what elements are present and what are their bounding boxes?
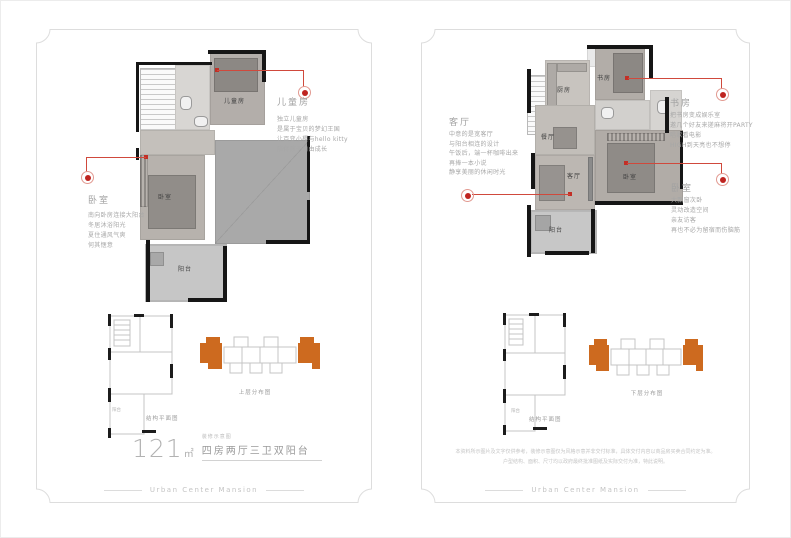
structure-plan-label: 结构平面图 (529, 415, 562, 423)
brand-name: Urban Center Mansion (531, 486, 639, 494)
annotation-body-child: 独立儿童房 是属于宝贝的梦幻王国 让百变小樱与hello kitty 陪伴孩子自… (277, 115, 348, 155)
leader-dot (461, 189, 474, 202)
room-label-living: 客厅 (567, 171, 581, 180)
distribution-diagram-lower (587, 335, 705, 383)
brand-name: Urban Center Mansion (150, 486, 258, 494)
panel-right: 厨房 书房 餐厅 客厅 卧室 阳台 客厅 中意的是宽客厅 与阳台相连的设计 午饭… (421, 29, 750, 503)
stair (140, 68, 177, 132)
room-terrace (215, 140, 310, 244)
room-label-bedroom: 卧室 (158, 192, 172, 201)
wall (591, 209, 595, 253)
card-footer: Urban Center Mansion (36, 486, 372, 494)
annotation-line: 静享美丽的休闲时光 (449, 168, 518, 178)
annotation-line: 与阳台相连的设计 (449, 140, 518, 150)
disclaimer-line-1: 本资料所示图片及文字仅供参考，装修示意图仅为风格示意并非交付标准，具体交付内容以… (445, 448, 726, 455)
disclaimer-line-2: 户型结构、面积、尺寸均以政府最终批准图纸及实际交付为准，特此说明。 (445, 458, 726, 465)
footer-rule (485, 490, 523, 491)
wall (208, 50, 266, 54)
wall (146, 240, 150, 302)
wall (223, 246, 227, 302)
room-hall (140, 130, 215, 155)
wall (307, 200, 310, 244)
wall (649, 45, 653, 79)
footer-rule (104, 490, 142, 491)
brochure-page: 儿童房 卧室 阳台 儿童房 独立儿童房 是属于宝贝的梦幻王国 让百变小樱与hel… (0, 0, 791, 538)
panel-left: 儿童房 卧室 阳台 儿童房 独立儿童房 是属于宝贝的梦幻王国 让百变小樱与hel… (36, 29, 372, 503)
wall (136, 148, 139, 160)
annotation-title-living: 客厅 (449, 115, 471, 128)
annotation-line: 让百变小樱与hello kitty (277, 135, 348, 145)
annotation-line: 夏住通风气爽 (88, 231, 145, 241)
wall (266, 240, 310, 244)
dining-table (553, 127, 577, 149)
leader-line (217, 70, 303, 71)
annotation-body-study: 把书房变成娱乐室 邀几个好友来搓麻将开PARTY 唱歌看电影 HIGH到天亮也不… (670, 111, 753, 151)
tv-cabinet (588, 157, 593, 201)
wall (531, 153, 535, 189)
footer-rule (648, 490, 686, 491)
distribution-label-upper: 上层分布图 (215, 388, 295, 396)
annotation-line: 大飘窗次卧 (671, 196, 740, 206)
structure-balcony-label: 阳台 (511, 408, 520, 414)
annotation-line: HIGH到天亮也不想停 (670, 141, 753, 151)
wall (587, 45, 651, 49)
structure-balcony-label: 阳台 (112, 407, 121, 413)
room-label-balcony: 阳台 (178, 264, 192, 273)
leader-line (86, 157, 87, 172)
annotation-line: 冬居沐浴阳光 (88, 221, 145, 231)
bed (613, 53, 643, 93)
annotation-line: 邀几个好友来搓麻将开PARTY (670, 121, 753, 131)
annotation-line: 把书房变成娱乐室 (670, 111, 753, 121)
bed (148, 175, 196, 229)
room-label-bedroom: 卧室 (623, 172, 637, 181)
area-tag: 装修示意图 (202, 433, 322, 440)
distribution-diagram-upper (198, 331, 322, 383)
annotation-body-living: 中意的是宽客厅 与阳台相连的设计 午饭后，端一杯咖啡出来 再捧一本小说 静享美丽… (449, 130, 518, 178)
card-footer: Urban Center Mansion (421, 486, 750, 494)
area-headline: 121 ㎡ 装修示意图 四房两厅三卫双阳台 (132, 433, 322, 461)
leader-line (627, 163, 721, 164)
headboard (607, 133, 665, 141)
floorplan-left: 儿童房 卧室 阳台 (128, 50, 313, 310)
annotation-title-child: 儿童房 (277, 95, 310, 108)
annotation-line: 再也不必为留宿而伤脑筋 (671, 226, 740, 236)
annotation-line: 灵动改造空间 (671, 206, 740, 216)
toilet-icon (601, 107, 614, 119)
wall (527, 205, 531, 257)
annotation-line: 南向卧房连接大阳台 (88, 211, 145, 221)
toilet-icon (180, 96, 192, 110)
leader-line (303, 70, 304, 87)
room-label-study: 书房 (597, 73, 611, 82)
wall (188, 298, 226, 302)
structure-plan-label: 结构平面图 (146, 414, 179, 422)
leader-dot (81, 171, 94, 184)
annotation-body-bedroom2: 大飘窗次卧 灵动改造空间 亲友访客 再也不必为留宿而伤脑筋 (671, 196, 740, 236)
sink-icon (194, 116, 208, 127)
leader-dot (716, 173, 729, 186)
sofa (539, 165, 565, 201)
annotation-line: 再捧一本小说 (449, 159, 518, 169)
area-value: 121 (132, 437, 183, 461)
annotation-line: 何其惬意 (88, 241, 145, 251)
room-label-dining: 餐厅 (541, 132, 555, 141)
annotation-body-bedroom: 南向卧房连接大阳台 冬居沐浴阳光 夏住通风气爽 何其惬意 (88, 211, 145, 251)
wall (136, 62, 139, 132)
annotation-line: 是属于宝贝的梦幻王国 (277, 125, 348, 135)
room-label-kitchen: 厨房 (557, 85, 571, 94)
footer-rule (266, 490, 304, 491)
wall (595, 201, 683, 205)
wall (665, 97, 669, 133)
leader-line (472, 194, 570, 195)
annotation-title-study: 书房 (670, 96, 692, 109)
annotation-line: 午饭后，端一杯咖啡出来 (449, 149, 518, 159)
leader-dot (716, 88, 729, 101)
leader-line (86, 157, 146, 158)
annotation-line: 独立儿童房 (277, 115, 348, 125)
annotation-line: 陪伴孩子自由成长 (277, 145, 348, 155)
area-unit: ㎡ (184, 448, 194, 461)
annotation-title-bedroom: 卧室 (88, 193, 110, 206)
wardrobe (140, 155, 148, 207)
kitchen-counter (557, 63, 587, 72)
kitchen-counter (547, 63, 557, 107)
planter (150, 252, 164, 266)
room-label-balcony: 阳台 (549, 225, 563, 234)
area-description: 四房两厅三卫双阳台 (202, 442, 322, 461)
bed (214, 58, 258, 92)
annotation-title-bedroom2: 卧室 (671, 181, 693, 194)
annotation-line: 亲友访客 (671, 216, 740, 226)
wall (136, 62, 212, 65)
wall (527, 69, 531, 113)
bed (607, 143, 655, 193)
room-label-child: 儿童房 (224, 96, 245, 105)
annotation-line: 唱歌看电影 (670, 131, 753, 141)
annotation-line: 中意的是宽客厅 (449, 130, 518, 140)
distribution-label-lower: 下层分布图 (607, 389, 687, 397)
wall (262, 50, 266, 82)
leader-line (628, 78, 721, 79)
wall (545, 251, 589, 255)
